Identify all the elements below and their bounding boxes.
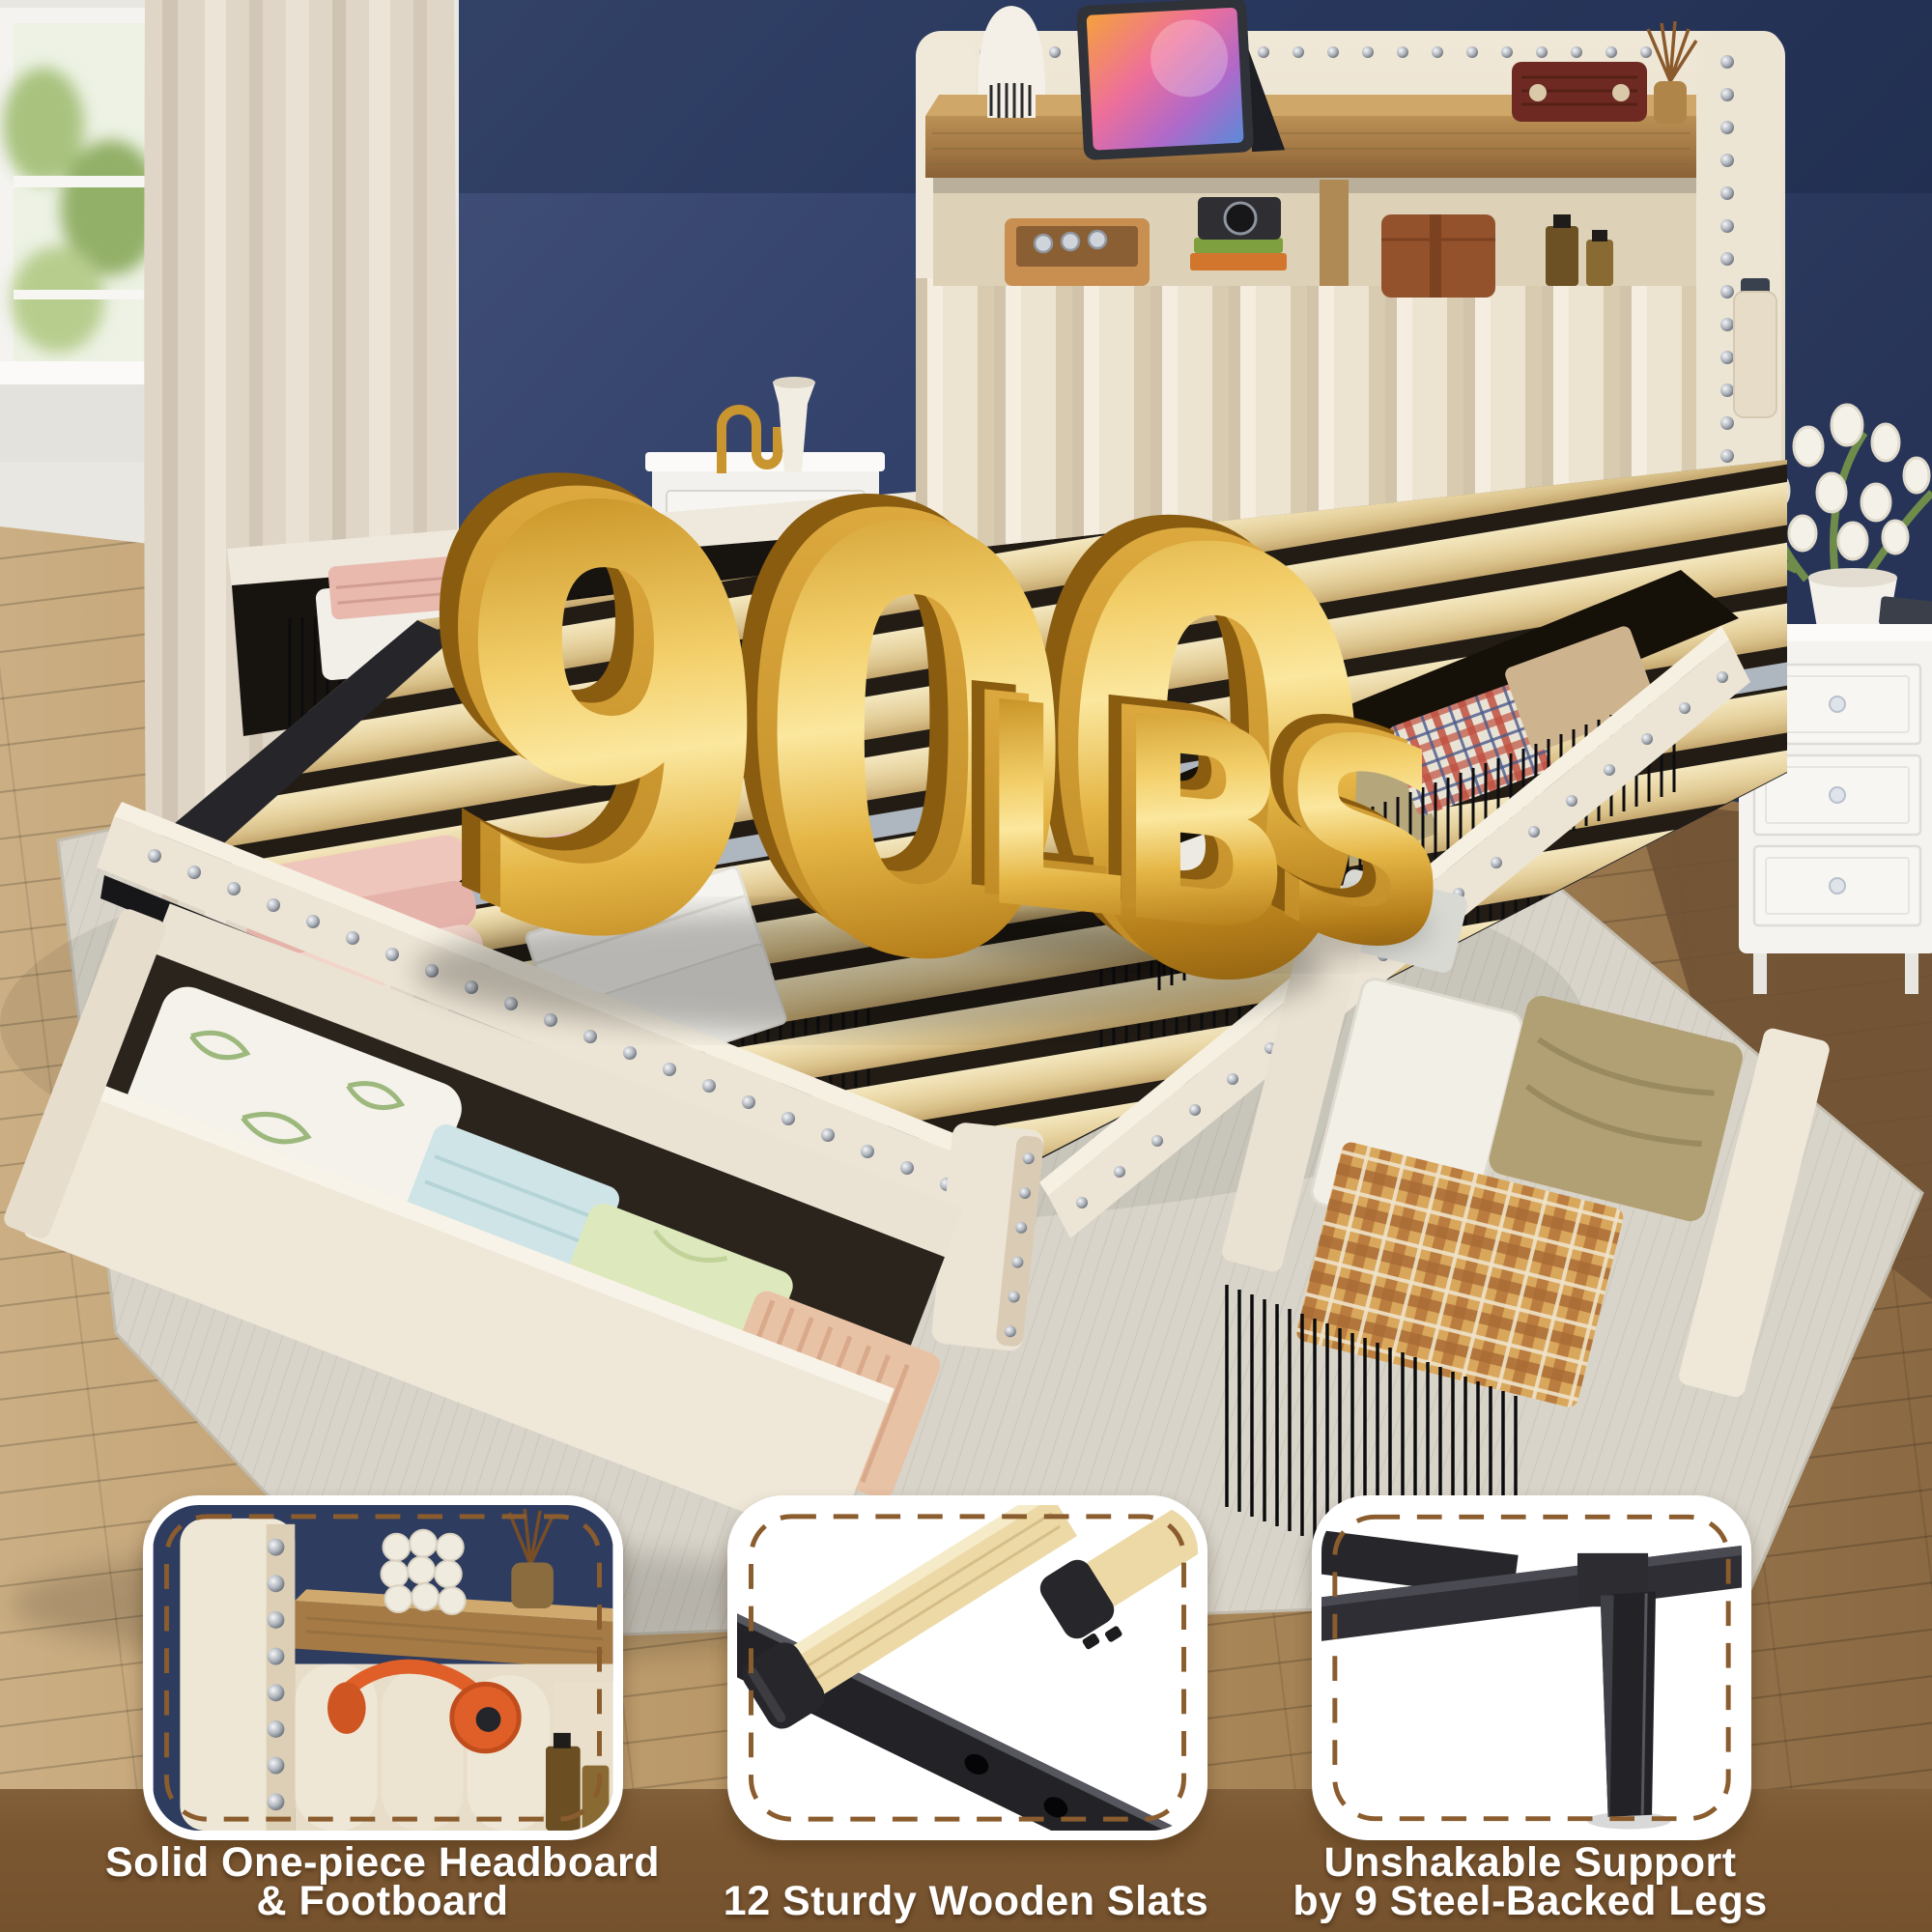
leather-box	[1381, 214, 1495, 298]
feature-card-slats	[727, 1495, 1207, 1840]
feature-card-headboard	[143, 1495, 623, 1840]
headboard-closeup-art	[153, 1505, 613, 1831]
legs-closeup-art	[1321, 1505, 1742, 1831]
radio	[1512, 62, 1647, 122]
camera-and-books	[1190, 197, 1287, 270]
side-pocket	[1734, 278, 1776, 417]
product-marketing-image: 900 900 900 LBS LBS LBS	[0, 0, 1932, 1932]
watch-tray	[1005, 218, 1150, 286]
caption-line: 12 Sturdy Wooden Slats	[724, 1878, 1208, 1924]
caption-slats: 12 Sturdy Wooden Slats	[638, 1843, 1294, 1920]
caption-line: by 9 Steel-Backed Legs	[1293, 1878, 1767, 1924]
weight-overlay: 900 900 900 LBS LBS LBS	[415, 355, 1437, 1119]
slats-closeup-art	[737, 1505, 1198, 1831]
caption-headboard: Solid One-piece Headboard & Footboard	[54, 1843, 711, 1920]
feature-card-legs	[1312, 1495, 1751, 1840]
caption-line: & Footboard	[256, 1878, 508, 1924]
bead-decor	[382, 1530, 466, 1614]
shelf-divider	[1320, 180, 1349, 286]
weight-unit-text: LBS	[978, 641, 1437, 1015]
caption-legs: Unshakable Support by 9 Steel-Backed Leg…	[1202, 1843, 1859, 1920]
